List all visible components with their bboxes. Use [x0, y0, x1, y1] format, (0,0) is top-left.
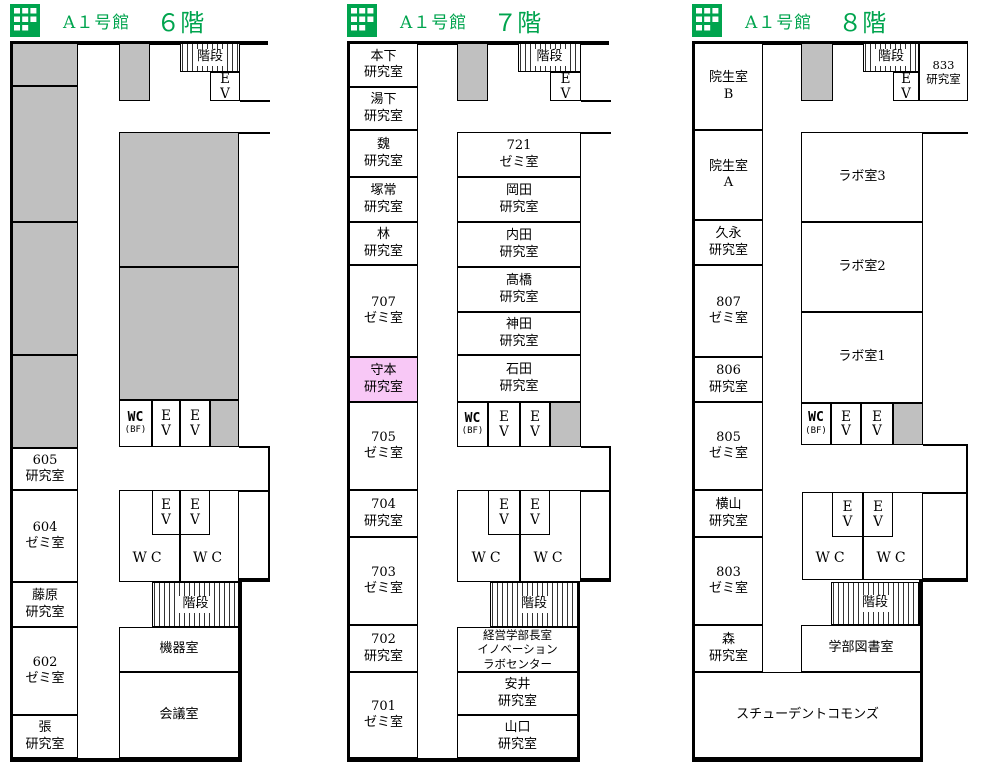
corridor-line — [239, 490, 270, 492]
wc-left: WC — [457, 535, 519, 582]
room-gi: 魏研究室 — [349, 130, 418, 177]
room-hayashi: 林研究室 — [349, 222, 418, 265]
elevator: EV — [152, 490, 180, 535]
building-icon — [10, 4, 40, 37]
room-604: 604ゼミ室 — [12, 490, 78, 582]
corridor-line — [239, 446, 270, 448]
stairs-top: 階段 — [180, 43, 240, 72]
service-room — [12, 43, 78, 86]
room-dean-innovation-lab: 経営学部長室イノベーションラボセンター — [457, 627, 578, 672]
room-yamaguchi: 山口研究室 — [457, 715, 578, 758]
room-motoshita: 本下研究室 — [349, 43, 418, 87]
room-705: 705ゼミ室 — [349, 402, 418, 490]
room-okada: 岡田研究室 — [457, 177, 581, 222]
corridor-edge — [609, 446, 611, 580]
building-name: A１号館 — [745, 8, 812, 33]
room-lab1: ラボ室1 — [801, 312, 923, 403]
service-cell — [893, 403, 923, 445]
floorplan-7f: A１号館 ７階 本下研究室湯下研究室魏研究室塚常研究室林研究室707ゼミ室守本研… — [347, 0, 613, 768]
room-student-commons: スチューデントコモンズ — [694, 672, 921, 758]
room-701: 701ゼミ室 — [349, 672, 418, 758]
elevator: EV — [180, 490, 210, 535]
corridor-line — [923, 492, 968, 494]
service-cell — [550, 402, 581, 447]
floorplan-canvas-8f: 院生室B院生室A久永研究室807ゼミ室806研究室805ゼミ室横山研究室803ゼ… — [692, 41, 970, 762]
stairs-bottom: 階段 — [152, 582, 239, 627]
room-704: 704研究室 — [349, 490, 418, 537]
wc-right: WC — [180, 535, 239, 582]
elevator: EV — [520, 490, 550, 535]
elevator: EV — [861, 403, 893, 445]
room-833: 833研究室 — [919, 43, 968, 101]
elevator: EV — [520, 402, 550, 447]
wc-right: WC — [519, 535, 581, 582]
room-602: 602ゼミ室 — [12, 627, 78, 715]
room-707: 707ゼミ室 — [349, 265, 418, 357]
room-806: 806研究室 — [694, 357, 763, 402]
building-name: A１号館 — [400, 8, 467, 33]
room-yushita: 湯下研究室 — [349, 87, 418, 130]
wall-jog — [576, 578, 611, 582]
building-name: A１号館 — [63, 8, 130, 33]
elevator: EV — [863, 492, 893, 537]
room-kanda: 神田研究室 — [457, 312, 581, 355]
corridor-line — [581, 100, 611, 102]
floor-title-7f: A１号館 ７階 — [347, 2, 541, 38]
service-room — [12, 86, 78, 222]
corridor-line — [923, 444, 968, 446]
floor-number: ８階 — [838, 3, 886, 38]
floor-title-6f: A１号館 ６階 — [10, 2, 204, 38]
wc-bf: WC(BF) — [457, 402, 488, 447]
room-takahashi: 髙橋研究室 — [457, 267, 581, 312]
room-lab2: ラボ室2 — [801, 222, 923, 312]
elevator: EV — [832, 492, 863, 537]
floor-map-page: A１号館 ６階 605研究室604ゼミ室藤原研究室602ゼミ室張研究室階段EVW… — [0, 0, 984, 780]
corridor-line — [239, 132, 270, 134]
service-block — [119, 132, 239, 267]
room-hisanaga: 久永研究室 — [694, 220, 763, 265]
elevator-top: EV — [550, 72, 581, 101]
wall-jog — [919, 578, 968, 582]
floorplan-canvas-6f: 605研究室604ゼミ室藤原研究室602ゼミ室張研究室階段EVWC(BF)EVE… — [10, 41, 272, 762]
room-ishida: 石田研究室 — [457, 355, 581, 402]
room-605: 605研究室 — [12, 448, 78, 490]
floorplan-6f: A１号館 ６階 605研究室604ゼミ室藤原研究室602ゼミ室張研究室階段EVW… — [10, 0, 272, 768]
elevator: EV — [831, 403, 861, 445]
corridor-line — [581, 132, 611, 134]
corridor-line — [581, 490, 611, 492]
elevator: EV — [152, 400, 180, 447]
wc-left: WC — [802, 537, 862, 580]
room-mori: 森研究室 — [694, 625, 763, 672]
elevator: EV — [180, 400, 210, 447]
building-icon — [347, 4, 377, 37]
building-icon — [692, 4, 722, 37]
service-room — [12, 355, 78, 448]
corridor-line — [240, 100, 270, 102]
stairs-bottom: 階段 — [490, 582, 578, 627]
floor-title-8f: A１号館 ８階 — [692, 2, 886, 38]
room-uchida: 内田研究室 — [457, 222, 581, 267]
floor-number: ７階 — [493, 3, 541, 38]
room-807: 807ゼミ室 — [694, 265, 763, 357]
corridor-line — [923, 132, 968, 134]
wc-bf: WC(BF) — [801, 403, 831, 445]
service-block — [457, 43, 488, 101]
wc-left: WC — [119, 535, 179, 582]
wall-jog — [238, 578, 270, 582]
room-tsukatsune: 塚常研究室 — [349, 177, 418, 222]
elevator: EV — [488, 490, 520, 535]
stairs-bottom: 階段 — [831, 582, 919, 625]
floor-number: ６階 — [156, 3, 204, 38]
wall-bottom — [692, 758, 923, 762]
wc-right: WC — [863, 537, 923, 580]
wall-bottom — [347, 758, 580, 762]
room-803: 803ゼミ室 — [694, 537, 763, 625]
room-yasui: 安井研究室 — [457, 672, 578, 715]
room-lab3: ラボ室3 — [801, 132, 923, 222]
room-yokoyama: 横山研究室 — [694, 490, 763, 537]
room-805: 805ゼミ室 — [694, 402, 763, 490]
room-721: 721ゼミ室 — [457, 132, 581, 177]
room-kaigishitsu: 会議室 — [119, 672, 239, 758]
wall-bottom — [10, 758, 242, 762]
floorplan-8f: A１号館 ８階 院生室B院生室A久永研究室807ゼミ室806研究室805ゼミ室横… — [692, 0, 970, 768]
wc-bf: WC(BF) — [119, 400, 152, 447]
corridor-line — [581, 446, 611, 448]
room-fujiwara: 藤原研究室 — [12, 582, 78, 627]
service-block — [801, 43, 833, 101]
service-cell — [210, 400, 239, 447]
stairs-top: 階段 — [518, 43, 581, 72]
elevator-top: EV — [893, 72, 919, 101]
elevator: EV — [488, 402, 520, 447]
room-gakubu-library: 学部図書室 — [801, 625, 921, 672]
room-morimoto-highlight: 守本研究室 — [349, 357, 418, 402]
room-insei-a: 院生室A — [694, 130, 763, 220]
stairs-top: 階段 — [863, 43, 919, 72]
room-cho: 張研究室 — [12, 715, 78, 758]
room-703: 703ゼミ室 — [349, 537, 418, 625]
corridor-edge — [966, 444, 968, 580]
room-702: 702研究室 — [349, 625, 418, 672]
room-insei-b: 院生室B — [694, 43, 763, 130]
room-kikishitsu: 機器室 — [119, 627, 239, 672]
elevator-top: EV — [210, 72, 240, 101]
service-block — [119, 267, 239, 400]
service-block — [119, 43, 150, 101]
service-room — [12, 222, 78, 355]
corridor-edge — [268, 446, 270, 580]
floorplan-canvas-7f: 本下研究室湯下研究室魏研究室塚常研究室林研究室707ゼミ室守本研究室705ゼミ室… — [347, 41, 613, 762]
